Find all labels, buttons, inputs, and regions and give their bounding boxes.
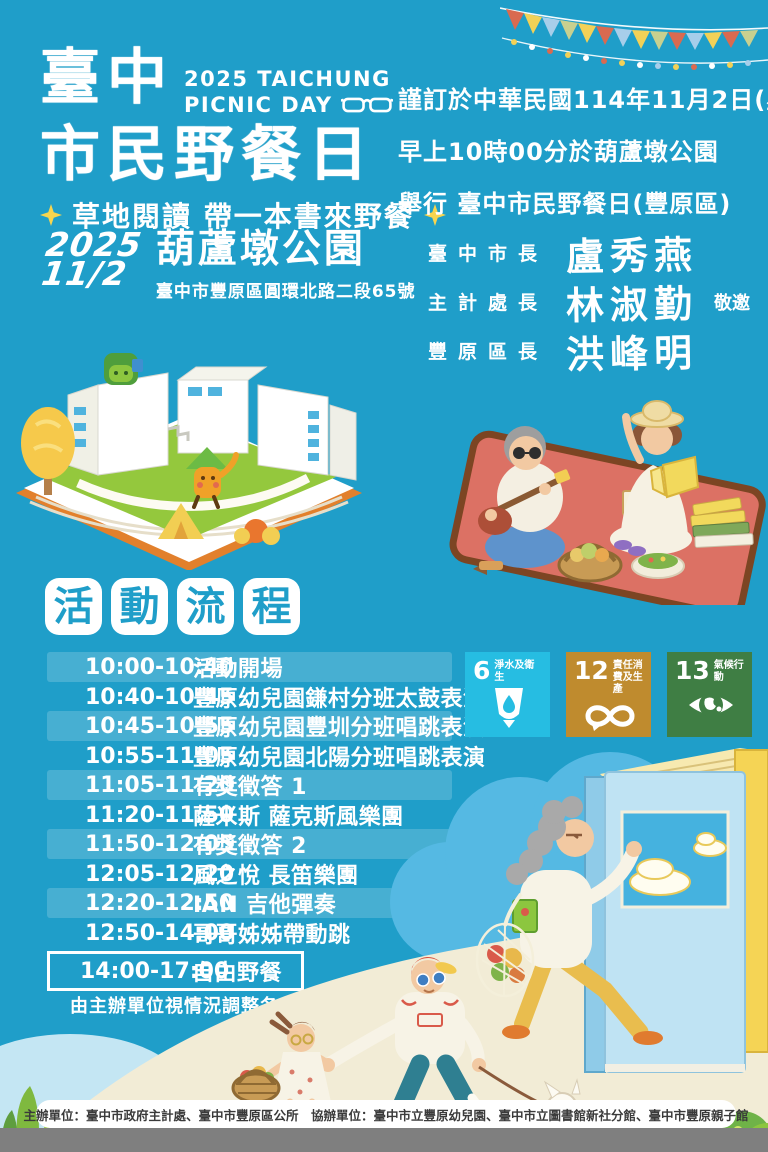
title-block: 臺中 2025 TAICHUNG PICNIC DAY 市民野餐日 <box>40 48 446 235</box>
sdg-card-13: 13 氣候行動 <box>667 652 752 737</box>
official-title: 豐原區長 <box>428 337 566 364</box>
credits-bar: 主辦單位：臺中市政府主計處、臺中市豐原區公所 協辦單位：臺中市立豐原幼兒園、臺中… <box>36 1100 736 1128</box>
heading-char: 動 <box>120 587 160 627</box>
eye-globe-icon <box>686 686 736 724</box>
picnic-couple-illustration <box>425 365 768 605</box>
heading-char: 程 <box>252 587 292 627</box>
popup-book-park-illustration <box>8 325 370 570</box>
picnic-day-poster: 臺中 2025 TAICHUNG PICNIC DAY 市民野餐日 <box>0 0 768 1152</box>
official-suffix: 敬邀 <box>714 289 750 315</box>
official-row: 臺中市長 盧秀燕 <box>428 228 750 277</box>
sparkle-icon <box>40 204 62 226</box>
heading-char: 活 <box>54 587 94 627</box>
water-glass-drop-icon <box>489 686 529 732</box>
schedule-time: 10:40-10:45 <box>85 685 193 710</box>
bunting-garland-icon <box>500 0 768 72</box>
sdg-card-12: 12 責任消費及生產 <box>566 652 651 737</box>
bottom-scene-illustration <box>0 732 768 1152</box>
invitation-line1: 謹訂於中華民國114年11月2日(星期日) <box>398 80 768 115</box>
sdg-number: 6 <box>473 658 490 683</box>
date-venue-block: 2025 11/2 葫蘆墩公園 臺中市豐原區圓環北路二段65號 <box>44 230 416 302</box>
heading-tile: 活 <box>45 578 102 635</box>
sdg-label: 責任消費及生產 <box>613 660 645 696</box>
official-title: 臺中市長 <box>428 239 566 266</box>
title-en-line2: PICNIC DAY <box>184 92 333 118</box>
event-date: 11/2 <box>40 259 140 288</box>
bottom-gray-bar <box>0 1128 768 1152</box>
sunglasses-icon <box>341 94 393 116</box>
invitation-line2: 早上10時00分於葫蘆墩公園 <box>398 132 768 167</box>
schedule-row: 10:40-10:45 豐原幼兒園鎌村分班太鼓表演 <box>47 682 452 712</box>
title-line2: 市民野餐日 <box>40 125 446 185</box>
heading-char: 流 <box>186 587 226 627</box>
schedule-heading: 活 動 流 程 <box>45 578 300 635</box>
sdg-number: 13 <box>675 658 710 683</box>
heading-tile: 動 <box>111 578 168 635</box>
blue-book <box>585 772 745 1072</box>
venue-name: 葫蘆墩公園 <box>156 230 416 269</box>
title-en-line1: 2025 TAICHUNG <box>184 66 393 92</box>
sdg-card-6: 6 淨水及衛生 <box>465 652 550 737</box>
sdg-number: 12 <box>574 658 609 683</box>
venue-address: 臺中市豐原區圓環北路二段65號 <box>156 277 416 302</box>
heading-tile: 流 <box>177 578 234 635</box>
schedule-time: 10:00-10:40 <box>85 655 193 680</box>
sdg-label: 淨水及衛生 <box>494 660 544 684</box>
schedule-activity: 活動開場 <box>193 651 283 683</box>
officials-block: 臺中市長 盧秀燕 主計處長 林淑勤 敬邀 豐原區長 洪峰明 <box>428 228 750 375</box>
sdg-row: 6 淨水及衛生 12 責任消費及生產 <box>465 652 752 737</box>
official-row: 主計處長 林淑勤 敬邀 <box>428 277 750 326</box>
official-title: 主計處長 <box>428 288 566 315</box>
invitation-line3: 舉行 臺中市民野餐日(豐原區) <box>398 184 768 219</box>
schedule-row: 10:00-10:40 活動開場 <box>47 652 452 682</box>
sdg-label: 氣候行動 <box>714 660 746 684</box>
schedule-activity: 豐原幼兒園鎌村分班太鼓表演 <box>193 681 486 713</box>
infinity-loop-icon <box>582 698 638 734</box>
invitation-block: 謹訂於中華民國114年11月2日(星期日) 早上10時00分於葫蘆墩公園 舉行 … <box>398 80 768 236</box>
title-line1: 臺中 <box>40 48 174 108</box>
heading-tile: 程 <box>243 578 300 635</box>
credits-text: 主辦單位：臺中市政府主計處、臺中市豐原區公所 協辦單位：臺中市立豐原幼兒園、臺中… <box>24 1105 749 1124</box>
